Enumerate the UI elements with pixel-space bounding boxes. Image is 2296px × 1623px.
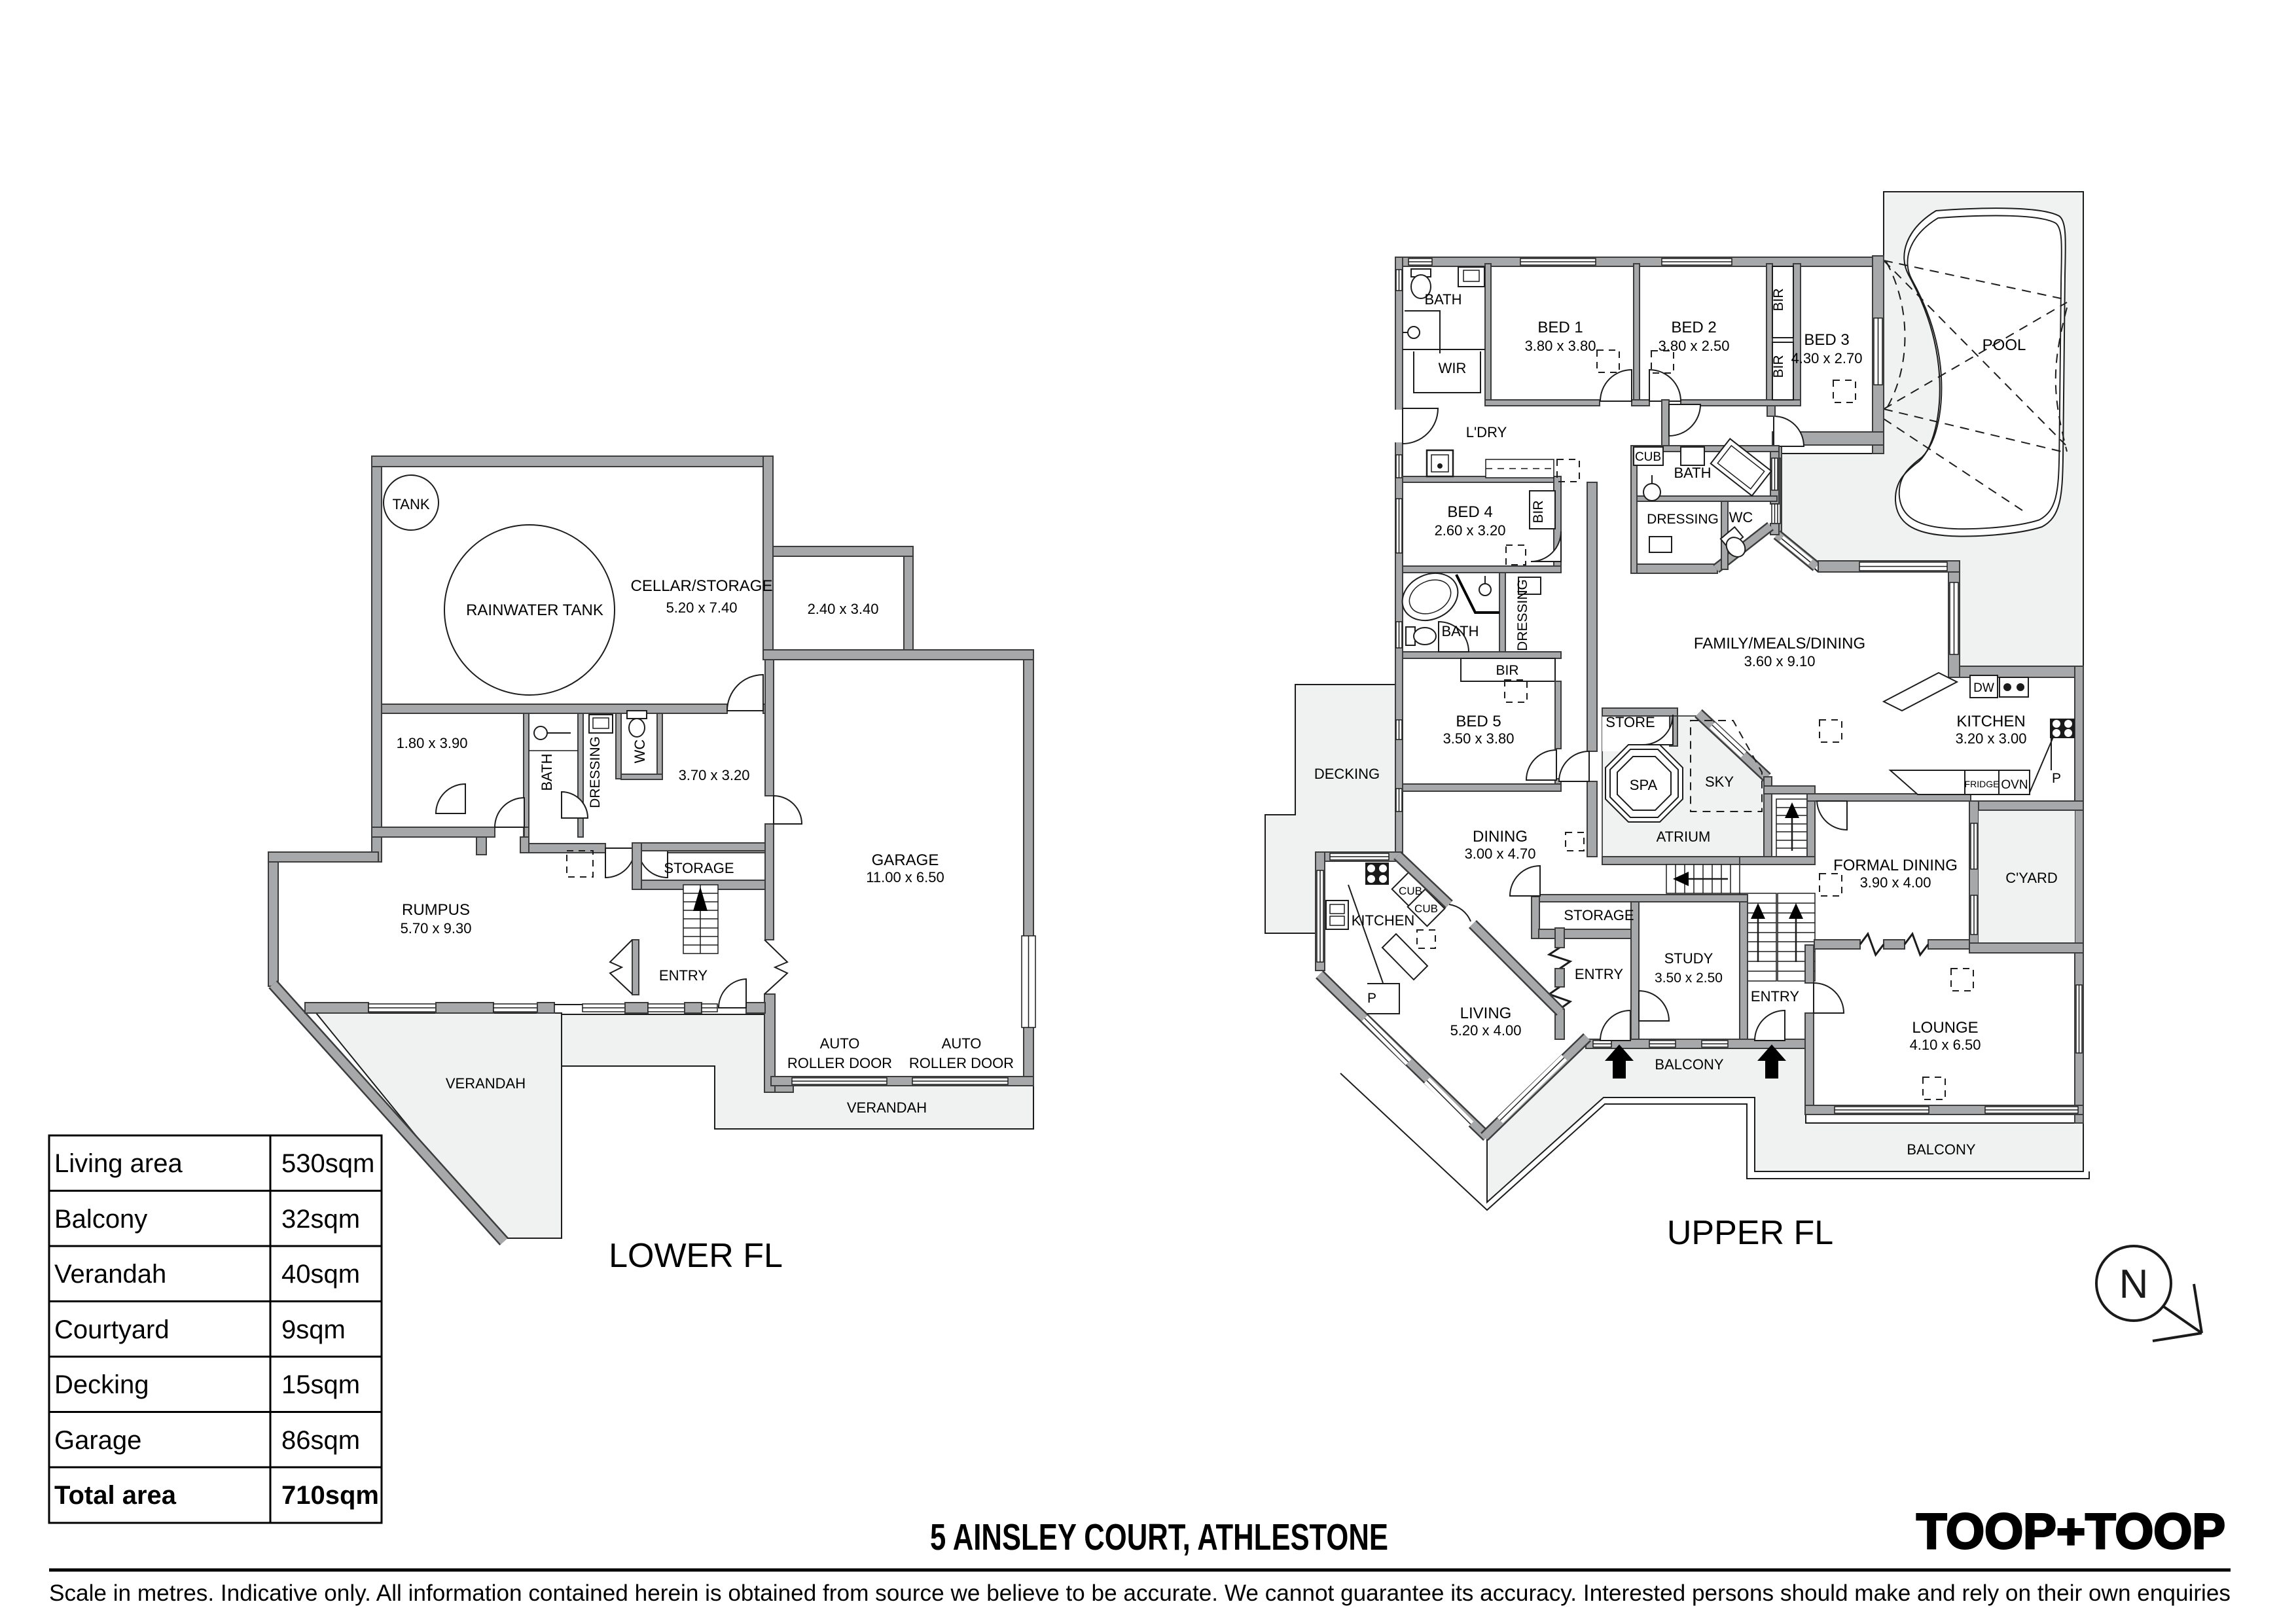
svg-text:RAINWATER TANK: RAINWATER TANK	[466, 601, 603, 619]
svg-text:WC: WC	[1729, 509, 1753, 526]
svg-text:UPPER FL: UPPER FL	[1667, 1214, 1833, 1252]
svg-text:TANK: TANK	[392, 496, 429, 512]
svg-text:1.80 x 3.90: 1.80 x 3.90	[397, 735, 468, 751]
svg-text:C'YARD: C'YARD	[2005, 870, 2058, 886]
svg-text:3.80 x 3.80: 3.80 x 3.80	[1525, 338, 1596, 354]
svg-text:ENTRY: ENTRY	[1751, 988, 1799, 1005]
svg-text:4.30 x 2.70: 4.30 x 2.70	[1791, 350, 1863, 366]
svg-text:P: P	[1367, 991, 1376, 1006]
svg-text:KITCHEN: KITCHEN	[1956, 713, 2025, 730]
svg-text:5.20 x 4.00: 5.20 x 4.00	[1450, 1022, 1522, 1039]
svg-text:Verandah: Verandah	[54, 1260, 166, 1289]
svg-text:DRESSING: DRESSING	[1647, 512, 1719, 527]
svg-text:GARAGE: GARAGE	[872, 851, 939, 869]
svg-text:AUTO: AUTO	[820, 1035, 860, 1052]
svg-text:POOL: POOL	[1982, 336, 2026, 354]
svg-text:BATH: BATH	[1424, 291, 1462, 308]
svg-text:3.80 x 2.50: 3.80 x 2.50	[1659, 338, 1730, 354]
svg-text:STORAGE: STORAGE	[1564, 907, 1634, 923]
svg-text:530sqm: 530sqm	[281, 1149, 374, 1178]
svg-text:OVN: OVN	[2001, 778, 2028, 792]
svg-text:BED 1: BED 1	[1537, 319, 1583, 336]
svg-text:TOOP+TOOP: TOOP+TOOP	[1916, 1504, 2225, 1560]
svg-text:KITCHEN: KITCHEN	[1352, 912, 1415, 929]
svg-text:4.10 x 6.50: 4.10 x 6.50	[1910, 1037, 1981, 1053]
svg-text:BED 5: BED 5	[1456, 713, 1501, 730]
svg-text:Courtyard: Courtyard	[54, 1315, 170, 1344]
svg-text:BED 3: BED 3	[1804, 331, 1849, 349]
svg-text:ENTRY: ENTRY	[1575, 966, 1623, 982]
svg-text:STUDY: STUDY	[1664, 950, 1713, 967]
svg-text:STORE: STORE	[1605, 714, 1655, 730]
svg-text:VERANDAH: VERANDAH	[847, 1099, 927, 1116]
svg-text:CUB: CUB	[1635, 450, 1661, 464]
svg-text:SPA: SPA	[1630, 777, 1658, 793]
svg-text:VERANDAH: VERANDAH	[446, 1075, 526, 1092]
svg-text:5 AINSLEY COURT, ATHLESTONE: 5 AINSLEY COURT, ATHLESTONE	[930, 1516, 1388, 1558]
svg-text:BED 4: BED 4	[1447, 503, 1492, 521]
svg-text:40sqm: 40sqm	[281, 1260, 360, 1289]
svg-text:N: N	[2119, 1262, 2149, 1307]
svg-text:32sqm: 32sqm	[281, 1205, 360, 1234]
svg-text:Living area: Living area	[54, 1149, 183, 1178]
svg-text:RUMPUS: RUMPUS	[402, 901, 470, 919]
svg-text:L'DRY: L'DRY	[1466, 424, 1507, 440]
svg-text:WC: WC	[632, 740, 648, 764]
svg-text:LOWER FL: LOWER FL	[609, 1237, 783, 1275]
svg-text:9sqm: 9sqm	[281, 1315, 346, 1344]
svg-text:3.50 x 3.80: 3.50 x 3.80	[1443, 730, 1515, 747]
svg-text:3.00 x 4.70: 3.00 x 4.70	[1465, 846, 1536, 862]
svg-text:P: P	[2052, 771, 2061, 786]
svg-text:BED 2: BED 2	[1671, 319, 1716, 336]
svg-text:11.00 x 6.50: 11.00 x 6.50	[866, 869, 944, 885]
svg-text:DW: DW	[1973, 681, 1994, 695]
svg-text:3.70 x 3.20: 3.70 x 3.20	[679, 767, 750, 783]
svg-text:BIR: BIR	[1496, 663, 1518, 678]
svg-text:ENTRY: ENTRY	[659, 967, 708, 984]
svg-text:LIVING: LIVING	[1460, 1005, 1512, 1022]
svg-text:BALCONY: BALCONY	[1655, 1056, 1723, 1073]
svg-text:CUB: CUB	[1399, 885, 1422, 897]
svg-text:Garage: Garage	[54, 1426, 141, 1455]
svg-text:STORAGE: STORAGE	[664, 860, 734, 876]
svg-text:5.20 x 7.40: 5.20 x 7.40	[666, 599, 738, 616]
svg-text:SKY: SKY	[1705, 774, 1734, 790]
svg-text:ROLLER DOOR: ROLLER DOOR	[909, 1055, 1014, 1071]
svg-text:WIR: WIR	[1439, 360, 1467, 376]
svg-text:BIR: BIR	[1771, 288, 1786, 311]
svg-text:ROLLER DOOR: ROLLER DOOR	[787, 1055, 892, 1071]
svg-text:DRESSING: DRESSING	[588, 736, 603, 808]
svg-text:LOUNGE: LOUNGE	[1912, 1019, 1978, 1037]
svg-text:FRIDGE: FRIDGE	[1965, 779, 2000, 789]
svg-text:Total area: Total area	[54, 1481, 177, 1510]
svg-text:3.20 x 3.00: 3.20 x 3.00	[1956, 730, 2027, 747]
svg-text:5.70 x 9.30: 5.70 x 9.30	[401, 920, 472, 936]
svg-text:86sqm: 86sqm	[281, 1426, 360, 1455]
svg-text:710sqm: 710sqm	[281, 1481, 379, 1510]
svg-text:Balcony: Balcony	[54, 1205, 147, 1234]
svg-text:BALCONY: BALCONY	[1907, 1141, 1975, 1158]
svg-text:2.40 x 3.40: 2.40 x 3.40	[808, 601, 879, 617]
svg-text:DINING: DINING	[1473, 828, 1528, 846]
svg-text:DRESSING: DRESSING	[1515, 579, 1530, 651]
svg-text:BATH: BATH	[1674, 465, 1711, 481]
svg-text:CUB: CUB	[1414, 902, 1438, 915]
svg-text:AUTO: AUTO	[942, 1035, 982, 1052]
svg-text:Decking: Decking	[54, 1370, 149, 1399]
svg-text:Scale in metres. Indicative on: Scale in metres. Indicative only. All in…	[49, 1580, 2231, 1606]
svg-text:CELLAR/STORAGE: CELLAR/STORAGE	[631, 577, 773, 595]
svg-text:15sqm: 15sqm	[281, 1370, 360, 1399]
svg-text:3.90 x 4.00: 3.90 x 4.00	[1860, 874, 1931, 891]
svg-text:3.60 x 9.10: 3.60 x 9.10	[1744, 653, 1816, 669]
svg-text:BIR: BIR	[1771, 355, 1786, 378]
svg-text:3.50 x 2.50: 3.50 x 2.50	[1655, 971, 1723, 986]
svg-text:2.60 x 3.20: 2.60 x 3.20	[1435, 522, 1506, 539]
svg-text:FORMAL DINING: FORMAL DINING	[1833, 857, 1958, 874]
svg-text:BIR: BIR	[1531, 500, 1546, 523]
svg-text:BATH: BATH	[539, 753, 555, 791]
svg-text:BATH: BATH	[1441, 623, 1479, 639]
svg-text:DECKING: DECKING	[1314, 766, 1380, 782]
svg-text:ATRIUM: ATRIUM	[1657, 829, 1711, 845]
svg-text:FAMILY/MEALS/DINING: FAMILY/MEALS/DINING	[1694, 635, 1865, 652]
